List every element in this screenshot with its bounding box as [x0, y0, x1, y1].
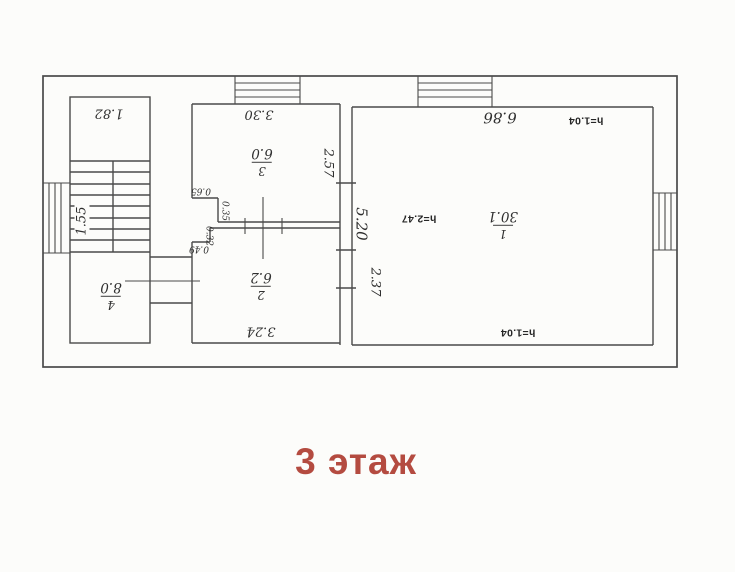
dim-room1-width: 6.86	[483, 110, 516, 125]
corridor-walls	[150, 257, 192, 303]
room1-area: 30.1	[488, 207, 518, 224]
dim-stair-flight-length: 1.55	[75, 205, 90, 238]
dim-height-mid: h=2.47	[402, 213, 437, 224]
dim-room2-width: 3.24	[247, 325, 276, 338]
window-right	[653, 193, 677, 250]
room4-number: 4	[101, 295, 121, 311]
dim-room3-width: 3.30	[245, 108, 274, 121]
dim-room1-depth: 5.20	[354, 207, 369, 240]
window-top-right	[418, 76, 492, 107]
window-left	[43, 183, 70, 253]
room-label-1: 1 30.1	[488, 207, 518, 241]
room2-area: 6.2	[250, 268, 271, 285]
window-top-left	[235, 76, 300, 104]
floor-title: 3 этаж	[295, 441, 417, 483]
dim-wall-segment: 2.37	[369, 268, 382, 297]
room2-number: 2	[251, 285, 271, 301]
room-label-2: 2 6.2	[250, 268, 271, 302]
dim-stair-bay-width: 1.82	[95, 107, 124, 120]
dim-height-top: h=1.04	[569, 115, 604, 126]
dim-notch-depth-a: 0.35	[220, 201, 229, 221]
dim-height-bottom: h=1.04	[501, 327, 536, 338]
dim-notch-width-b: 0.49	[189, 244, 209, 253]
room23-partition	[210, 222, 340, 228]
dim-room3-depth: 2.57	[322, 149, 335, 178]
room3-area: 6.0	[251, 144, 272, 161]
room1-number: 1	[493, 224, 513, 240]
room4-area: 8.0	[100, 278, 121, 295]
dim-notch-width-a: 0.65	[191, 186, 211, 195]
floorplan-sheet: 1.82 1.55 3.30 2.57 6.86 h=1.04 5.20 h=2…	[0, 0, 735, 572]
room3-number: 3	[252, 161, 272, 177]
room-label-4: 4 8.0	[100, 278, 121, 312]
room-label-3: 3 6.0	[251, 144, 272, 178]
